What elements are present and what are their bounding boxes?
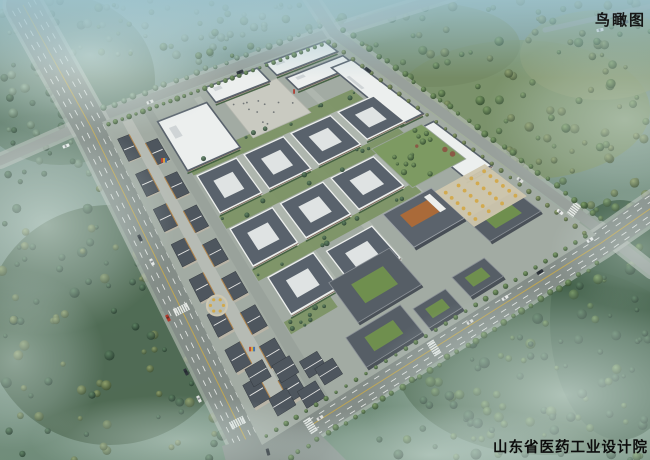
round-plaza-tree <box>219 298 222 301</box>
tree <box>509 176 512 179</box>
tree <box>513 278 517 282</box>
tree <box>354 378 359 383</box>
tree <box>360 149 364 153</box>
tree <box>475 96 484 105</box>
golden-tree <box>462 207 466 211</box>
tree <box>257 274 260 277</box>
tree <box>312 307 315 310</box>
tree <box>471 147 475 151</box>
golden-tree <box>501 184 505 188</box>
garden-tree <box>407 154 414 161</box>
round-plaza-tree <box>219 309 222 312</box>
plaza-people-dot <box>262 121 264 123</box>
garden-tree <box>424 131 429 136</box>
tree <box>474 124 480 130</box>
golden-tree <box>482 187 486 191</box>
canopy-stripe <box>253 347 255 352</box>
golden-tree <box>463 189 467 193</box>
tree <box>526 189 531 194</box>
plaza-people-dot <box>264 103 266 105</box>
tree <box>147 331 156 340</box>
golden-tree <box>468 212 472 216</box>
garden-tree <box>420 138 426 144</box>
tree <box>290 326 295 331</box>
canopy-stripe <box>165 158 167 163</box>
tree <box>334 391 337 394</box>
golden-tree <box>475 199 479 203</box>
tree <box>435 120 439 124</box>
golden-tree <box>500 202 504 206</box>
round-plaza-tree <box>222 304 225 307</box>
tree <box>319 103 323 107</box>
tree <box>425 113 428 116</box>
tree <box>308 313 312 317</box>
canopy-stripe <box>251 347 253 352</box>
garden-tree <box>412 128 417 133</box>
golden-tree <box>476 182 480 186</box>
plaza-people-dot <box>278 102 280 104</box>
tree <box>132 323 140 331</box>
plaza-people-dot <box>233 104 235 106</box>
tree <box>263 126 268 131</box>
tree <box>342 221 347 226</box>
tree <box>340 167 345 172</box>
tree <box>364 372 367 375</box>
golden-tree <box>487 209 491 213</box>
golden-tree <box>457 184 461 188</box>
tree <box>416 106 420 110</box>
garden-tree <box>416 134 420 138</box>
golden-tree <box>495 179 499 183</box>
tree <box>447 103 453 109</box>
tree <box>355 216 360 221</box>
golden-tree <box>488 192 492 196</box>
tree <box>320 243 324 247</box>
tree <box>453 134 457 138</box>
garden-tree <box>404 162 409 167</box>
tree <box>299 320 302 323</box>
plaza-people-dot <box>246 102 248 104</box>
tree <box>438 90 445 97</box>
golden-tree <box>444 191 448 195</box>
tree <box>536 196 541 201</box>
aerial-rendering-page: 鸟瞰图 山东省医药工业设计院 <box>0 0 650 460</box>
aerial-rendering: 鸟瞰图 山东省医药工业设计院 <box>0 0 650 460</box>
tree <box>344 384 347 387</box>
golden-tree <box>481 204 485 208</box>
tree <box>308 318 312 322</box>
garden-tree <box>411 163 416 168</box>
tree <box>499 168 504 173</box>
golden-tree <box>507 189 511 193</box>
tree <box>260 198 265 203</box>
market-canopy <box>161 158 167 163</box>
tree <box>304 409 308 413</box>
garden-tree <box>396 162 399 165</box>
tree <box>288 320 292 324</box>
tree <box>323 396 328 401</box>
tree <box>444 127 447 130</box>
tree <box>456 111 460 115</box>
tree <box>189 381 194 386</box>
round-plaza-tree <box>209 304 212 307</box>
tree <box>162 347 167 352</box>
tree <box>355 148 358 151</box>
tree <box>543 259 548 264</box>
plaza-people-dot <box>257 100 259 102</box>
red-flag <box>293 89 295 94</box>
golden-tree <box>489 174 493 178</box>
golden-tree <box>456 201 460 205</box>
tree <box>397 92 402 97</box>
tree <box>19 451 25 457</box>
tree <box>201 156 206 161</box>
tree <box>490 162 494 166</box>
tree <box>141 349 146 354</box>
tree <box>503 283 508 288</box>
view-title: 鸟瞰图 <box>595 11 646 29</box>
golden-tree <box>494 197 498 201</box>
canopy-stripe <box>161 158 163 163</box>
plaza-people-dot <box>256 111 258 113</box>
golden-tree <box>473 217 477 221</box>
plaza-people-dot <box>273 111 275 113</box>
tree <box>367 147 370 150</box>
tree <box>221 217 224 220</box>
round-plaza-tree <box>212 298 215 301</box>
canopy-stripe <box>249 347 251 352</box>
tree <box>523 271 528 276</box>
garden-tree <box>427 171 432 176</box>
tree <box>411 80 415 84</box>
tree <box>517 182 521 186</box>
tree <box>438 98 442 102</box>
tree <box>245 136 248 139</box>
design-institute-credit: 山东省医药工业设计院 <box>493 438 648 456</box>
canopy-stripe <box>163 158 165 163</box>
golden-tree <box>482 169 486 173</box>
tree <box>467 119 471 123</box>
tree <box>347 95 352 100</box>
tree <box>324 241 330 247</box>
tree <box>322 304 326 308</box>
tree <box>322 236 326 240</box>
garden-tree <box>450 151 456 157</box>
tree <box>280 262 283 265</box>
plaza-people-dot <box>292 102 294 104</box>
tree <box>475 84 481 90</box>
golden-tree <box>450 196 454 200</box>
tree <box>101 380 111 390</box>
plaza-people-dot <box>248 109 250 111</box>
tree <box>481 155 485 159</box>
tree <box>545 203 550 208</box>
tree <box>104 350 114 360</box>
golden-tree <box>514 194 518 198</box>
plaza-people-dot <box>243 103 245 105</box>
tree <box>151 347 157 353</box>
tree <box>353 92 355 94</box>
tree <box>314 402 319 407</box>
garden-tree <box>415 144 418 147</box>
tree <box>533 265 537 269</box>
tree <box>302 172 307 177</box>
garden-tree <box>392 155 397 160</box>
tree <box>406 99 410 103</box>
tree <box>430 93 436 99</box>
tree <box>251 130 256 135</box>
tree <box>395 198 398 201</box>
garden-tree <box>442 147 447 152</box>
sky-haze <box>0 0 650 78</box>
tree <box>244 212 249 217</box>
golden-tree <box>469 194 473 198</box>
tree <box>388 84 393 89</box>
tree <box>289 123 292 126</box>
tree <box>146 365 153 372</box>
tree <box>421 87 426 92</box>
round-plaza-tree <box>212 309 215 312</box>
market-canopy <box>249 347 255 352</box>
garden-tree <box>401 169 407 175</box>
tree <box>462 141 466 145</box>
golden-tree <box>469 177 473 181</box>
tree <box>303 324 306 327</box>
tree <box>307 181 312 186</box>
plaza-people-dot <box>267 123 269 125</box>
garden-tree <box>428 137 433 142</box>
tree <box>378 78 383 83</box>
tree <box>400 197 404 201</box>
